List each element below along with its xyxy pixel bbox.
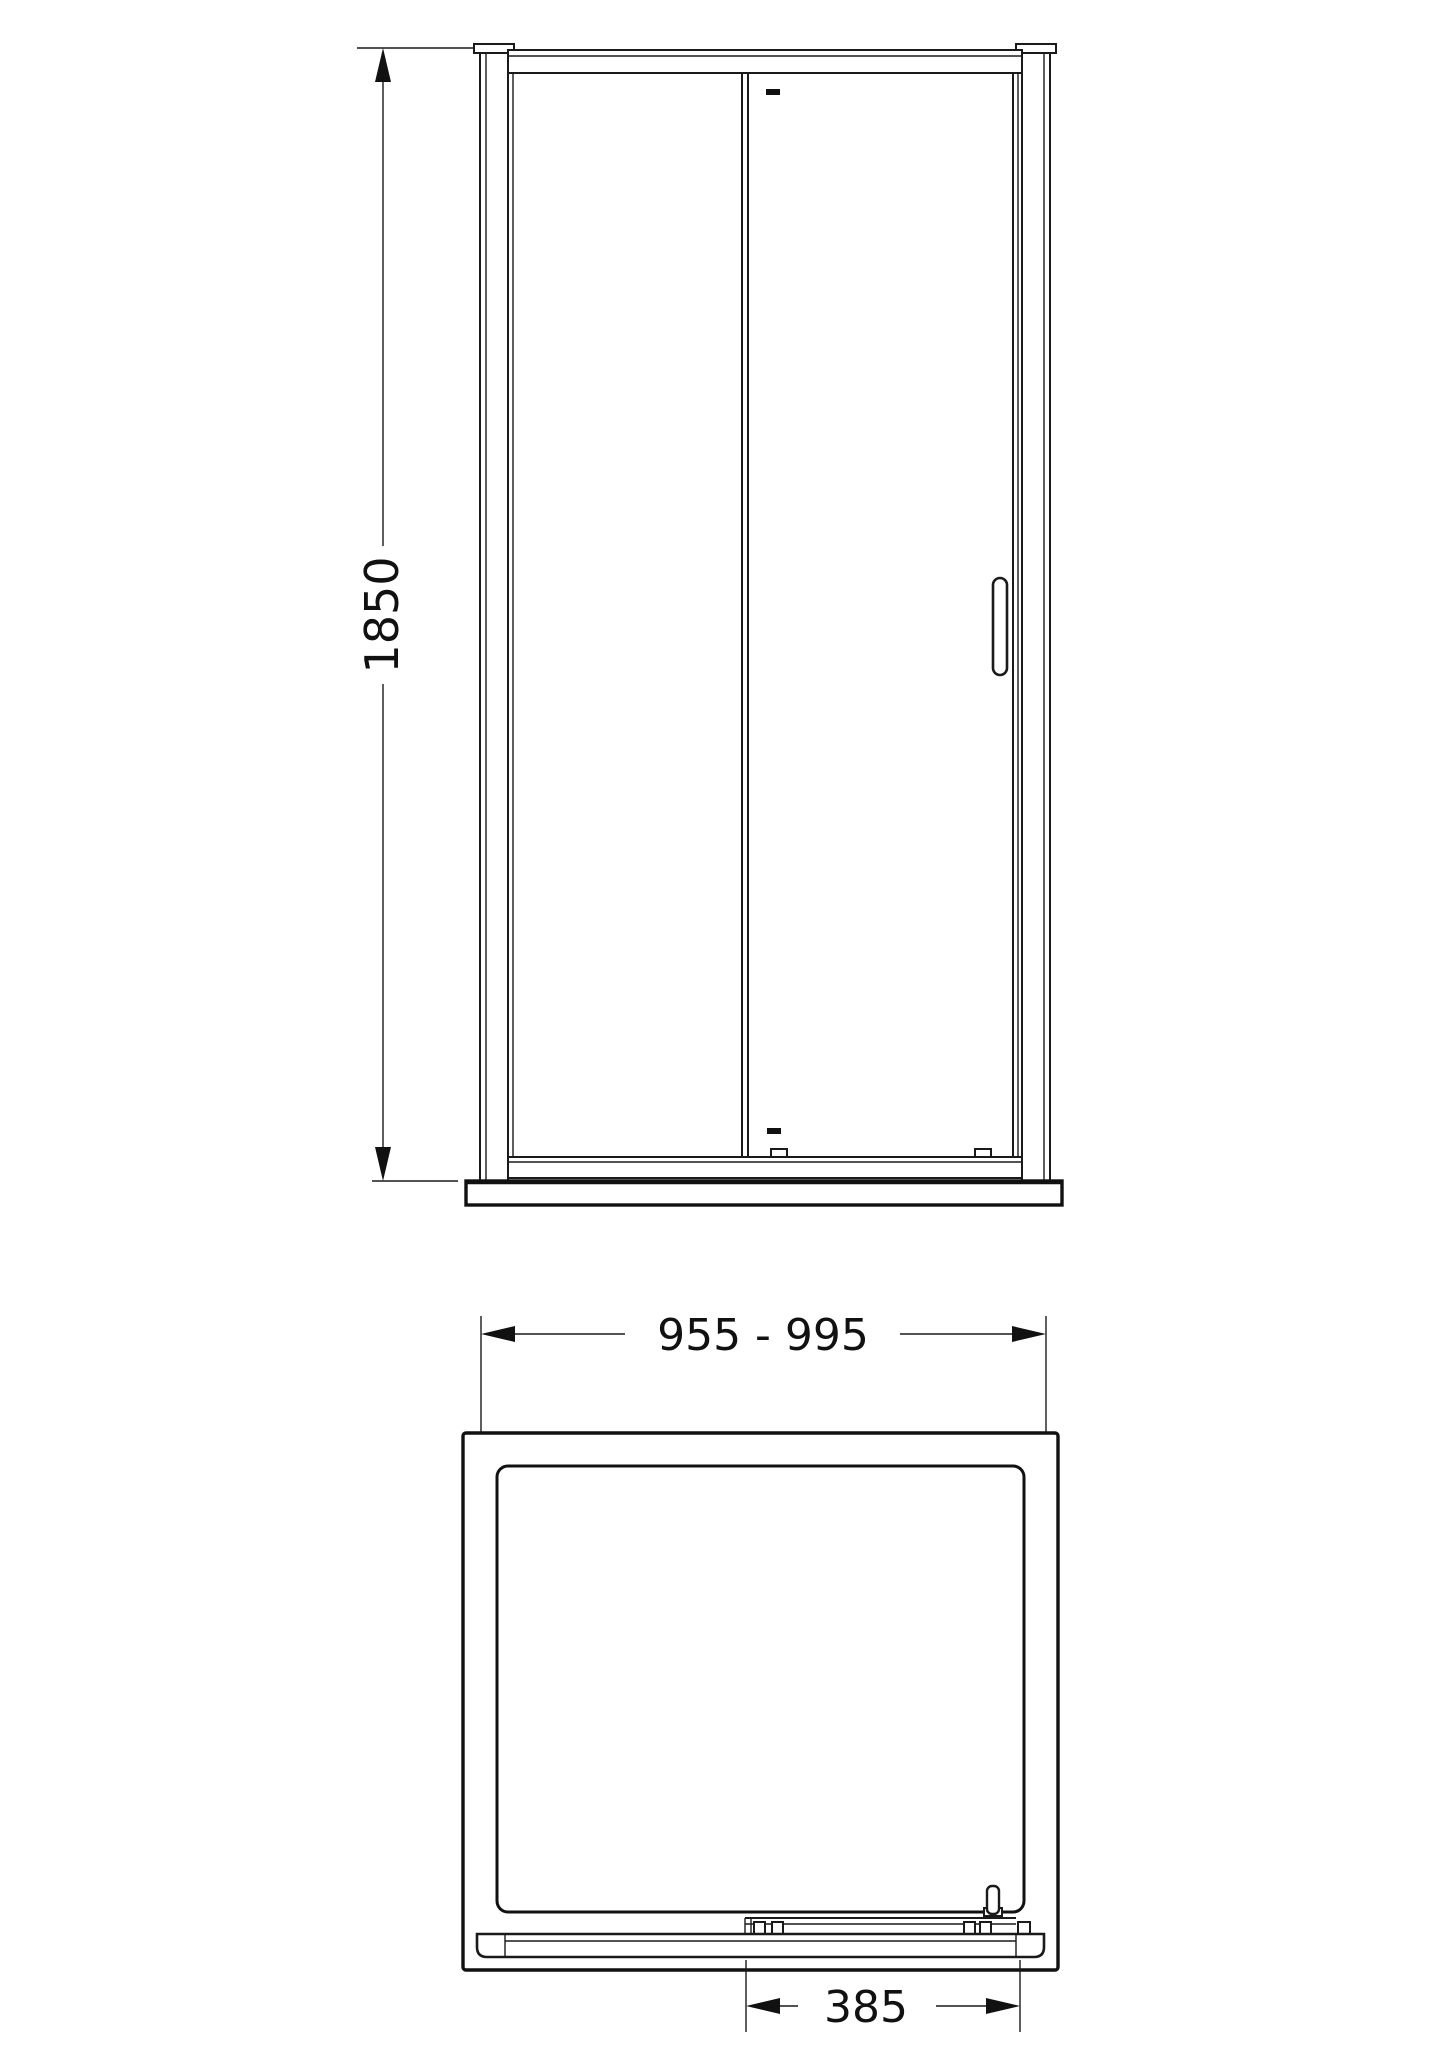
height-dimension: 1850 xyxy=(355,48,474,1181)
door-handle xyxy=(993,578,1007,675)
roller-bracket-right-foot-2 xyxy=(980,1922,991,1934)
height-dimension-label: 1850 xyxy=(355,556,409,673)
roller-bracket-mid-foot-1 xyxy=(754,1922,765,1934)
tray-inner-rim xyxy=(497,1466,1024,1912)
width-dim-arrow-right xyxy=(1012,1326,1046,1342)
top-rail-body xyxy=(508,50,1022,73)
fixed-glass-panel xyxy=(513,73,748,1157)
roller-bracket-right-foot-1 xyxy=(964,1922,975,1934)
right-wall-profile xyxy=(1016,44,1056,1181)
bottom-rail-body xyxy=(508,1157,1022,1178)
opening-dim-arrow-left xyxy=(746,1998,780,2014)
door-track-plan xyxy=(477,1934,1044,1957)
top-rail xyxy=(508,50,1022,73)
end-stop-block xyxy=(1018,1922,1030,1934)
opening-dimension-label: 385 xyxy=(824,1982,908,2033)
tray-body xyxy=(466,1181,1062,1205)
roller-bracket-mid-foot-2 xyxy=(772,1922,783,1934)
width-dimension: 955 - 995 xyxy=(481,1310,1046,1443)
shower-tray-elevation xyxy=(466,1181,1062,1205)
width-dimension-label: 955 - 995 xyxy=(657,1310,869,1361)
plan-view: 955 - 995 xyxy=(463,1310,1058,2033)
opening-dim-arrow-right xyxy=(986,1998,1020,2014)
left-wall-channel xyxy=(480,53,508,1181)
sliding-glass-panel xyxy=(766,73,1018,1158)
technical-drawing-page: 1850 xyxy=(0,0,1445,2045)
handle-plan-knob xyxy=(987,1886,999,1914)
shower-door-technical-drawing: 1850 xyxy=(0,0,1445,2045)
tray-plan-outline xyxy=(463,1433,1058,1970)
width-dim-arrow-left xyxy=(481,1326,515,1342)
right-wall-channel xyxy=(1022,53,1050,1181)
bottom-rail xyxy=(508,1157,1022,1178)
front-elevation-view: 1850 xyxy=(355,44,1062,1205)
height-dim-arrow-up xyxy=(375,48,391,82)
left-wall-profile xyxy=(474,44,514,1181)
track-strip xyxy=(477,1934,1044,1957)
bottom-guide-mark xyxy=(767,1128,781,1134)
height-dim-arrow-down xyxy=(375,1147,391,1181)
top-roller-mark xyxy=(766,89,780,95)
